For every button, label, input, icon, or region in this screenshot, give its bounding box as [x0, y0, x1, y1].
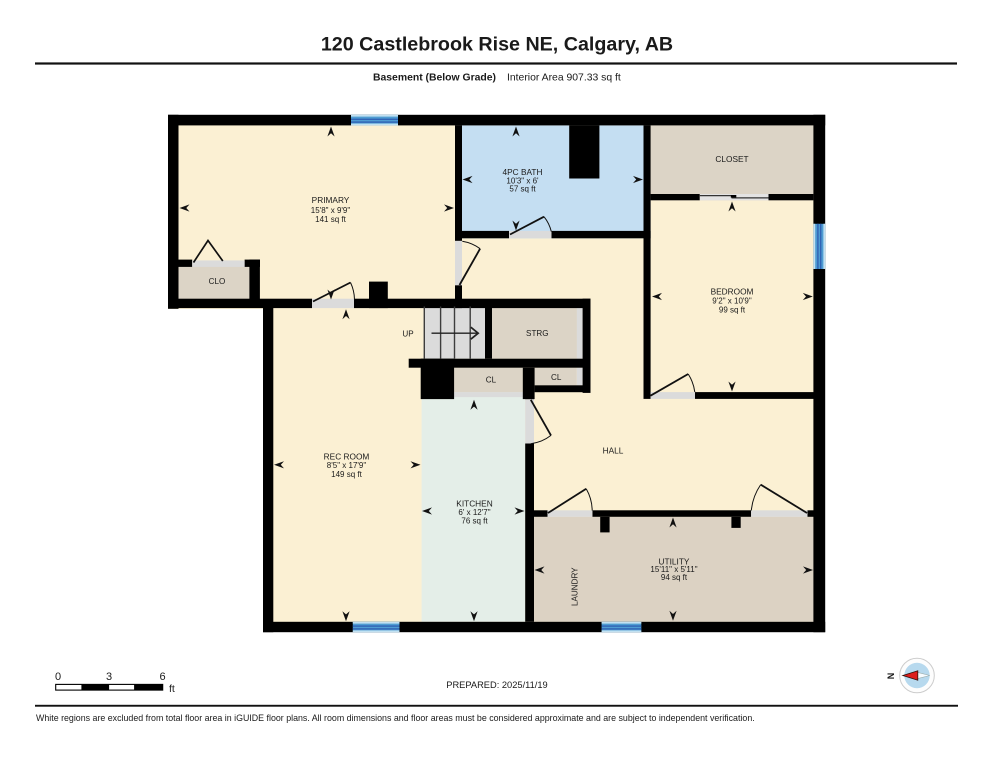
svg-text:Interior Area 907.33 sq ft: Interior Area 907.33 sq ft [507, 73, 621, 84]
svg-text:94 sq ft: 94 sq ft [661, 573, 688, 582]
svg-text:CL: CL [551, 373, 562, 382]
svg-text:3: 3 [106, 671, 112, 683]
svg-text:UP: UP [402, 330, 413, 339]
svg-text:9'2" x 10'9": 9'2" x 10'9" [712, 296, 752, 305]
svg-text:57 sq ft: 57 sq ft [509, 185, 536, 194]
svg-text:149 sq ft: 149 sq ft [331, 470, 362, 479]
svg-text:6: 6 [160, 671, 166, 683]
svg-text:N: N [886, 673, 896, 680]
svg-text:LAUNDRY: LAUNDRY [570, 567, 579, 606]
svg-text:White regions are excluded fro: White regions are excluded from total fl… [36, 713, 755, 723]
svg-text:REC ROOM: REC ROOM [324, 452, 370, 462]
svg-text:PRIMARY: PRIMARY [312, 195, 350, 205]
svg-text:CL: CL [486, 375, 497, 384]
svg-text:99 sq ft: 99 sq ft [719, 306, 746, 315]
svg-text:8'5" x 17'9": 8'5" x 17'9" [327, 461, 367, 470]
svg-text:STRG: STRG [526, 329, 548, 338]
svg-text:141 sq ft: 141 sq ft [315, 215, 346, 224]
svg-text:CLOSET: CLOSET [715, 154, 748, 164]
svg-text:15'8" x 9'9": 15'8" x 9'9" [311, 206, 351, 215]
svg-text:CLO: CLO [209, 277, 226, 286]
svg-text:PREPARED: 2025/11/19: PREPARED: 2025/11/19 [446, 680, 547, 690]
svg-text:Basement (Below Grade): Basement (Below Grade) [373, 73, 496, 84]
svg-text:120 Castlebrook Rise NE, Calga: 120 Castlebrook Rise NE, Calgary, AB [321, 34, 673, 56]
svg-text:BEDROOM: BEDROOM [711, 286, 754, 296]
svg-text:HALL: HALL [603, 446, 624, 456]
svg-text:76 sq ft: 76 sq ft [461, 516, 488, 525]
svg-text:ft: ft [169, 683, 175, 695]
svg-text:0: 0 [55, 671, 61, 683]
